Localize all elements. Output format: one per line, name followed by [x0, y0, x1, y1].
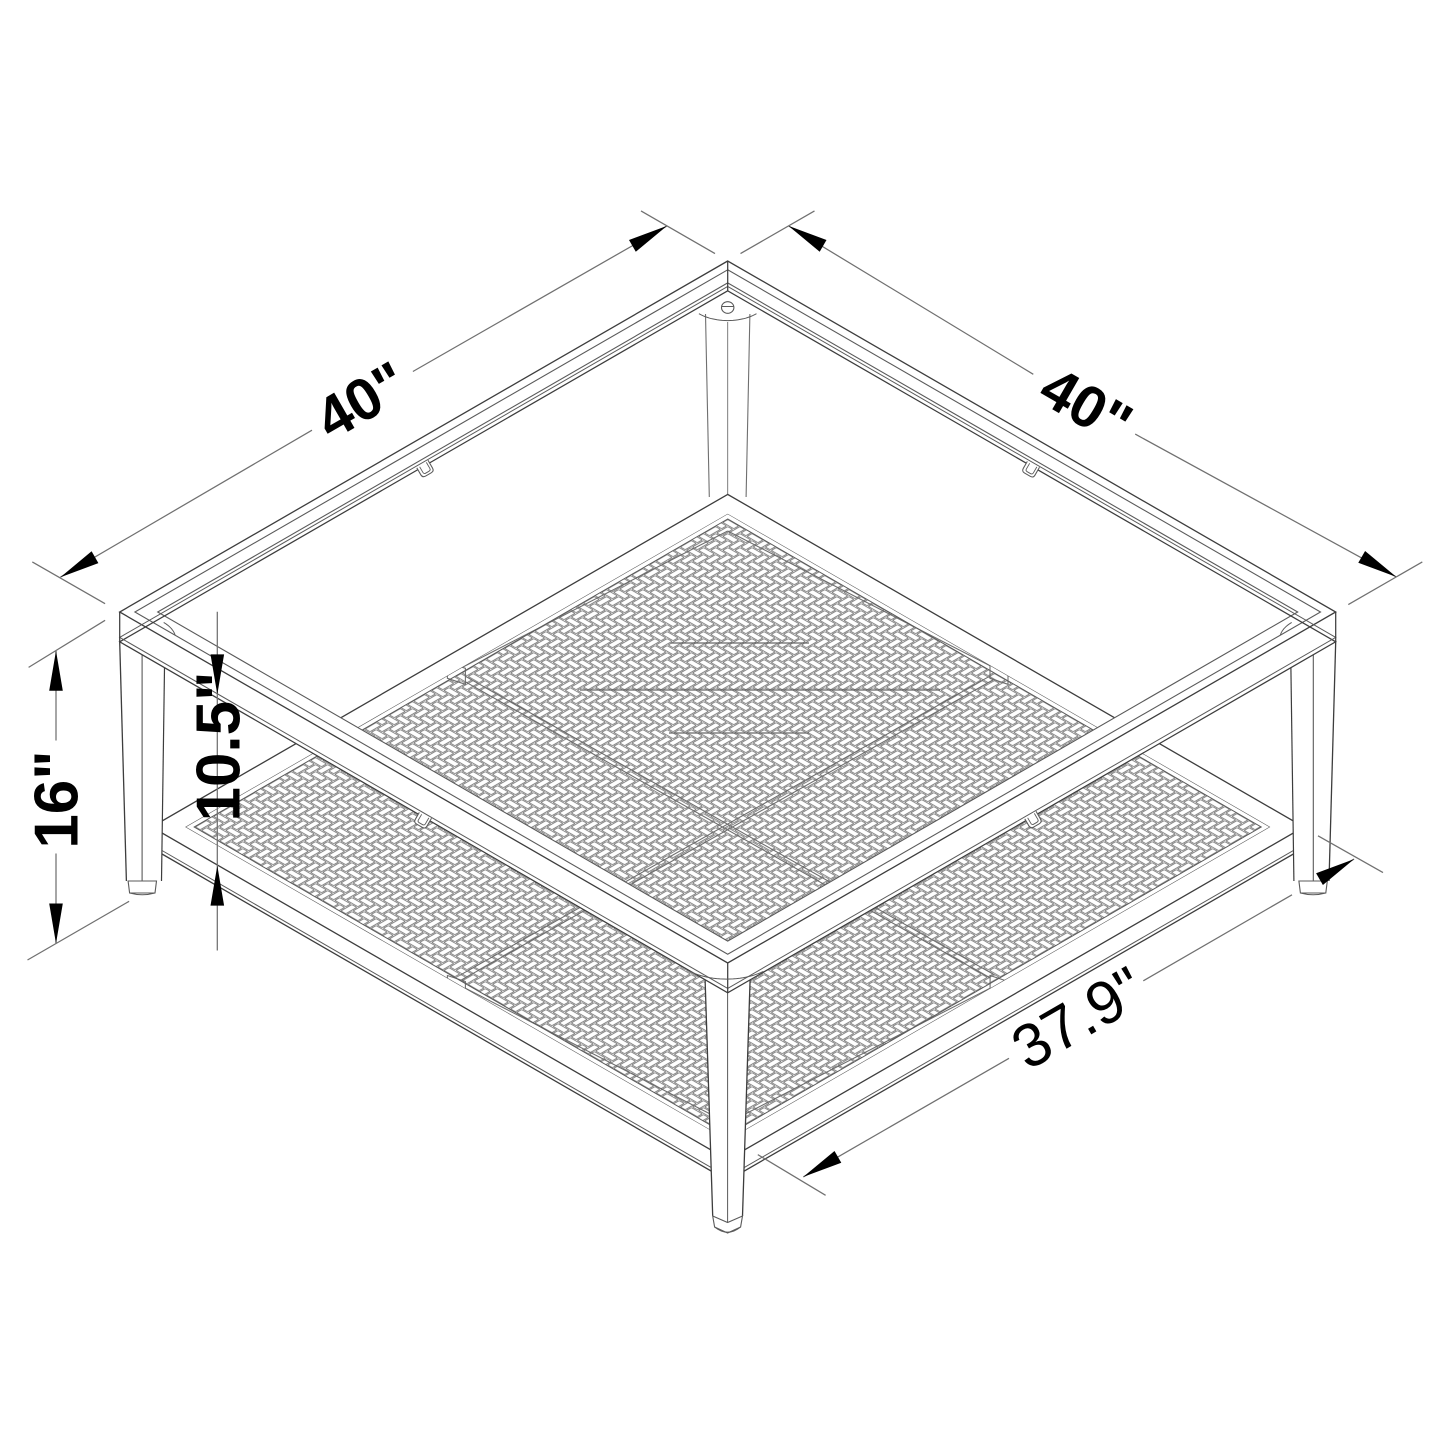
- svg-text:10.5": 10.5": [185, 671, 254, 821]
- svg-text:16": 16": [23, 750, 92, 848]
